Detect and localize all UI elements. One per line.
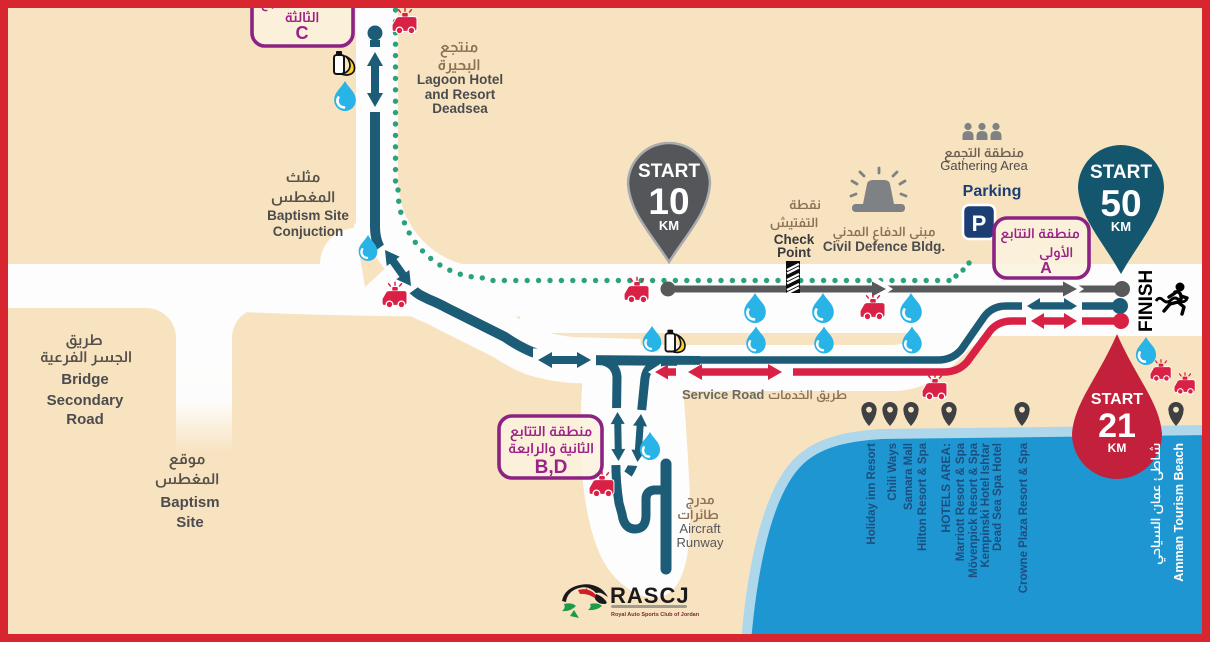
svg-text:C: C — [296, 23, 309, 43]
svg-text:P: P — [972, 211, 987, 236]
svg-text:Crowne Plaza Resort & Spa: Crowne Plaza Resort & Spa — [1018, 442, 1030, 593]
svg-text:START: START — [638, 161, 700, 182]
svg-text:Mövenpick Resort & Spa: Mövenpick Resort & Spa — [968, 442, 980, 577]
svg-text:Service Road: Service Road — [682, 387, 764, 402]
svg-text:Deadsea: Deadsea — [432, 101, 488, 116]
svg-text:Lagoon Hotel: Lagoon Hotel — [417, 72, 503, 87]
svg-text:RASCJ: RASCJ — [610, 583, 690, 608]
svg-text:Holiday inn Resort: Holiday inn Resort — [866, 443, 878, 545]
svg-text:HOTELS AREA:: HOTELS AREA: — [939, 443, 953, 533]
svg-text:Gathering Area: Gathering Area — [940, 158, 1028, 173]
svg-text:FINISH: FINISH — [1136, 270, 1157, 332]
svg-text:Road: Road — [66, 411, 104, 428]
svg-text:Dead Sea Spa Hotel: Dead Sea Spa Hotel — [992, 443, 1004, 551]
svg-text:Parking: Parking — [963, 183, 1022, 200]
svg-text:Kempinski Hotel Ishtar: Kempinski Hotel Ishtar — [980, 442, 992, 567]
svg-text:50: 50 — [1100, 183, 1141, 224]
svg-text:KM: KM — [1108, 441, 1127, 455]
svg-text:21: 21 — [1098, 407, 1136, 445]
svg-text:Baptism: Baptism — [160, 494, 219, 511]
svg-text:Samara Mall: Samara Mall — [903, 443, 915, 510]
svg-text:10: 10 — [648, 181, 689, 222]
svg-text:Runway: Runway — [677, 535, 724, 550]
svg-text:and Resort: and Resort — [425, 87, 496, 102]
svg-text:KM: KM — [1111, 219, 1131, 234]
svg-text:Bridge: Bridge — [61, 371, 109, 388]
svg-text:Amman Tourism Beach: Amman Tourism Beach — [1172, 443, 1186, 582]
svg-text:Civil Defence Bldg.: Civil Defence Bldg. — [823, 239, 945, 254]
svg-text:Hilton Resort & Spa: Hilton Resort & Spa — [917, 442, 929, 551]
svg-text:START: START — [1091, 391, 1143, 408]
svg-text:Baptism Site: Baptism Site — [267, 208, 349, 223]
svg-text:START: START — [1090, 162, 1152, 183]
svg-text:Conjuction: Conjuction — [273, 224, 344, 239]
svg-text:Royal Auto Sports Club of Jord: Royal Auto Sports Club of Jordan — [611, 612, 700, 618]
svg-text:Site: Site — [176, 514, 204, 531]
svg-text:Chili Ways: Chili Ways — [887, 443, 899, 501]
svg-text:Aircraft: Aircraft — [679, 521, 721, 536]
svg-text:B,D: B,D — [535, 457, 568, 478]
svg-text:Marriott Resort & Spa: Marriott Resort & Spa — [955, 442, 967, 561]
svg-text:Secondary: Secondary — [47, 392, 124, 409]
svg-text:KM: KM — [659, 218, 679, 233]
svg-text:A: A — [1040, 260, 1052, 277]
svg-text:Point: Point — [777, 245, 811, 260]
